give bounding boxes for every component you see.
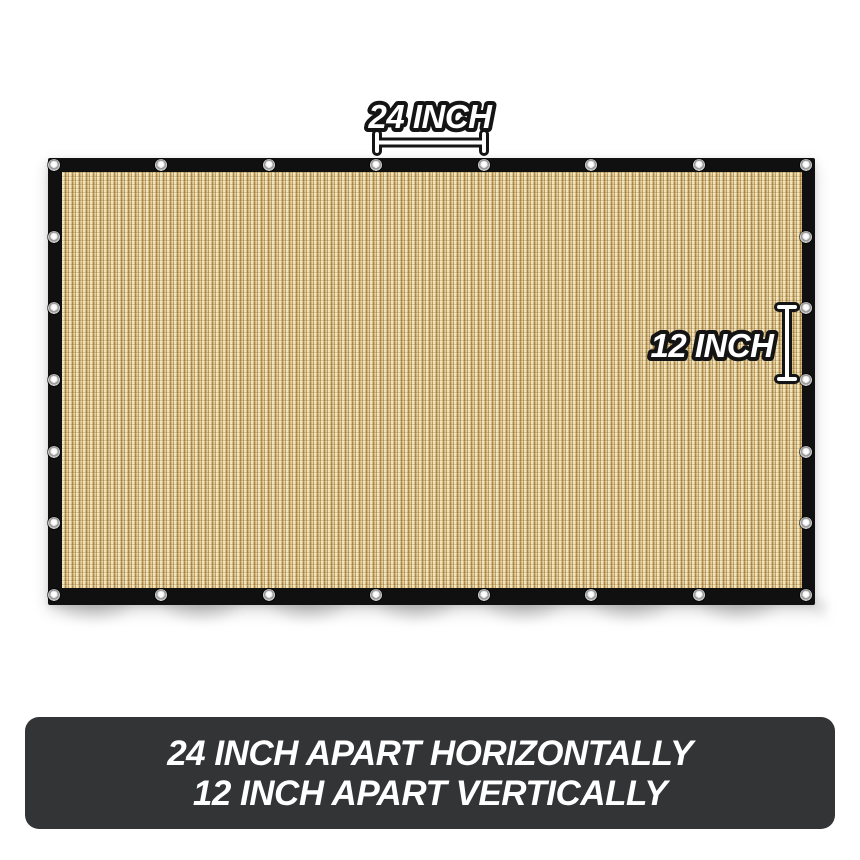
- grommet: [800, 517, 812, 529]
- tarp-drape-shadow: [40, 600, 826, 650]
- banner-line-1: 24 INCH APART HORIZONTALLY: [167, 734, 693, 773]
- spacing-banner: 24 INCH APART HORIZONTALLY 12 INCH APART…: [25, 717, 835, 829]
- horizontal-spacing-label: 24 INCH: [367, 98, 493, 135]
- grommet: [800, 589, 812, 601]
- grommet: [800, 159, 812, 171]
- grommet: [478, 159, 490, 171]
- grommet: [48, 302, 60, 314]
- grommet: [585, 589, 597, 601]
- grommet: [370, 589, 382, 601]
- grommet: [48, 446, 60, 458]
- grommet: [48, 374, 60, 386]
- grommet: [48, 159, 60, 171]
- horizontal-ruler-icon: [377, 134, 484, 151]
- grommet: [693, 589, 705, 601]
- grommet: [800, 446, 812, 458]
- vertical-spacing-annotation: 12 INCH: [630, 293, 810, 398]
- vertical-spacing-label: 12 INCH: [650, 327, 775, 364]
- grommet: [478, 589, 490, 601]
- grommet: [693, 159, 705, 171]
- grommet: [370, 159, 382, 171]
- grommet: [48, 589, 60, 601]
- grommet: [48, 231, 60, 243]
- product-image: 24 INCH 12 INCH 24 INCH APART HORIZONTAL…: [0, 0, 860, 860]
- grommet: [263, 589, 275, 601]
- grommet: [585, 159, 597, 171]
- grommet: [800, 231, 812, 243]
- grommet: [155, 159, 167, 171]
- grommet: [48, 517, 60, 529]
- banner-line-2: 12 INCH APART VERTICALLY: [193, 774, 667, 813]
- grommet: [155, 589, 167, 601]
- horizontal-spacing-annotation: 24 INCH: [330, 88, 550, 158]
- grommet: [263, 159, 275, 171]
- vertical-ruler-icon: [779, 307, 795, 379]
